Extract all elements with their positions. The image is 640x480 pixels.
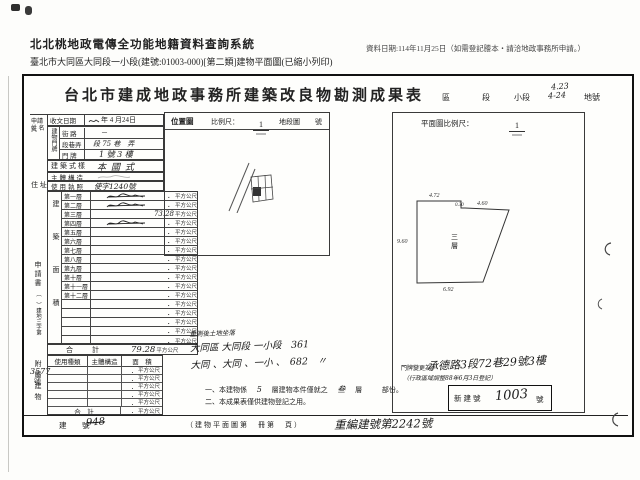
note1-part-f: 部份。	[382, 386, 403, 394]
lane-value: 段 75 巷 弄	[93, 139, 134, 149]
scale-numerator: 1	[253, 121, 269, 131]
receive-date-label: 收文日期	[48, 115, 85, 125]
floor-row: 第九層．平方公尺	[62, 264, 198, 273]
note1-hand-floors: 5	[257, 385, 262, 394]
floor-label: 第一層	[62, 192, 91, 200]
sheet-label: 地段圖	[279, 117, 300, 127]
floor-label	[62, 336, 91, 344]
building-address-block: 建物門牌 街 路 － 段巷弄 段 75 巷 弄 門 牌 1 號 3 樓	[47, 126, 164, 160]
door-number-label: 門 牌	[60, 150, 85, 160]
scale-fraction: 1	[253, 114, 269, 135]
street-value: －	[101, 128, 108, 138]
dim-bottom: 6.92	[443, 287, 454, 293]
handwriting-scribble	[88, 117, 100, 125]
form-title: 台北市建成地政事務所建築改良物勘測成果表	[64, 84, 424, 105]
street-label: 街 路	[60, 128, 85, 138]
annex-group-label: 附屬建物	[33, 360, 43, 404]
location-map-header: 位置圖 比例尺： 1 地段圖 號	[165, 113, 329, 130]
unit-label: 平方公尺	[175, 264, 197, 272]
unit-label: 平方公尺	[175, 273, 197, 281]
applicant-label-2: 姓 名	[31, 123, 45, 132]
cancelled-scribble	[105, 219, 161, 228]
floor-label: 第六層	[62, 237, 91, 245]
scan-mark-crescent	[608, 412, 621, 427]
unit-label: 平方公尺	[175, 309, 197, 317]
resurvey-line2: 大同 、大同 、一小 、 682 〃	[190, 353, 327, 372]
floor-total-label: 合 計	[66, 345, 105, 355]
address-label: 住 址	[31, 181, 47, 189]
floor-row: ．平方公尺	[62, 300, 198, 309]
unit-label: 平方公尺	[175, 255, 197, 263]
new-building-no-box: 新建號 1003 號	[448, 385, 552, 411]
document-line: 臺北市大同區大同段一小段(建號:01003-000)[第二類]建物平面圖(已縮小…	[30, 55, 332, 68]
building-address-group-label: 建物門牌	[49, 128, 58, 160]
floor-label	[62, 327, 91, 335]
cancelled-scribble	[105, 201, 161, 210]
new-building-no-suffix: 號	[536, 394, 544, 405]
receive-date-row: 收文日期 年 4 月24日	[47, 114, 164, 126]
floor-row: 第十二層．平方公尺	[62, 291, 198, 300]
renumber-text: 重編建號第2242號	[334, 415, 433, 433]
floor-label	[62, 318, 91, 326]
district-label: 區	[442, 92, 450, 103]
application-doc-top: 申請書	[33, 261, 43, 288]
floor-row: ．平方公尺	[62, 309, 198, 318]
structure-label: 主體構造	[48, 172, 91, 181]
date-info: 資料日期:114年11月25日（如需登記謄本‧請洽地政事務所申請。）	[366, 43, 628, 54]
location-map-box: 位置圖 比例尺： 1 地段圖 號	[164, 112, 330, 256]
annex-total-row: 合 計 ．平方公尺	[48, 406, 162, 415]
unit-label: 平方公尺	[175, 318, 197, 326]
floor-value: ．	[167, 336, 174, 345]
annex-header-use: 使用種類	[48, 356, 88, 366]
style-row: 建築式樣 本國式	[47, 160, 164, 172]
note1-part-e: 層	[355, 386, 362, 394]
application-doc-mid: （ ）建地三字第	[34, 291, 42, 335]
unit-label: 平方公尺	[138, 407, 160, 415]
floor-label: 第二層	[62, 201, 91, 209]
door-number-value: 1 號 3 樓	[99, 149, 133, 160]
bottom-strip: 建 號 948 （建物平面圖第 冊第 頁） 重編建號第2242號	[24, 415, 628, 432]
dim-left: 9.60	[397, 239, 408, 245]
note-1: 一、本建物係 5 層建物本件僅就之 叁 層 部份。	[205, 384, 403, 395]
location-map-title: 位置圖	[171, 116, 194, 127]
cancelled-scribble	[105, 192, 161, 201]
floor-label: 第十一層	[62, 282, 91, 290]
note1-part-c: 層建物本件僅就之	[272, 386, 328, 394]
annex-header-structure: 主體構造	[88, 356, 122, 366]
resurvey-note: 重測後土地坐落 大同區 大同段 一小段 361 大同 、大同 、一小 、 682…	[189, 324, 327, 372]
floor-row: ．平方公尺	[62, 318, 198, 327]
floor-plan-box: 平面圖比例尺： 1 4.72 0.30 4.60 9.60 6.92 三 層 門…	[392, 112, 585, 413]
floor-label: 第十二層	[62, 291, 91, 299]
unit-label: 平方公尺	[175, 300, 197, 308]
location-sketch	[223, 155, 281, 213]
floor-total-value: 79.28	[131, 345, 155, 355]
scan-speckle	[25, 6, 32, 15]
plan-book-label: （建物平面圖第 冊第 頁）	[186, 420, 303, 430]
lot-handwritten-lower: 4-24	[548, 91, 566, 101]
floor-label: 第八層	[62, 255, 91, 263]
style-label: 建築式樣	[48, 161, 91, 171]
room-label-char2: 層	[451, 242, 458, 250]
floor-row: ．平方公尺	[62, 327, 198, 336]
receive-date-value: 年 4 月24日	[101, 115, 136, 125]
section-label: 段	[482, 92, 490, 103]
style-value: 本國式	[97, 160, 139, 172]
floor-total-row: 合 計 79.28 平方公尺	[47, 344, 198, 355]
license-value: 使字1240號	[94, 181, 136, 191]
floor-label	[62, 300, 91, 308]
room-label-char1: 三	[451, 233, 458, 241]
new-building-no-label: 新建號	[454, 393, 483, 404]
page-edge-line	[8, 76, 9, 472]
floor-label: 第五層	[62, 228, 91, 236]
unit-label: 平方公尺	[175, 282, 197, 290]
scale-denominator-smudge	[256, 133, 266, 135]
floor-label: 第四層	[62, 219, 91, 227]
floor-label: 第十層	[62, 273, 91, 281]
scan-mark-crescent	[600, 241, 614, 257]
subsection-label: 小段	[514, 92, 530, 103]
license-label: 使用執照	[48, 181, 91, 191]
floor-row: ．平方公尺	[62, 336, 198, 344]
dim-top: 4.72	[429, 192, 440, 199]
annex-total-label: 合 計	[48, 406, 121, 415]
unit-label: 平方公尺	[138, 398, 160, 406]
sheet-number-label: 號	[315, 117, 322, 127]
scan-mark-crescent	[595, 298, 605, 310]
floor-label: 第九層	[62, 264, 91, 272]
lot-label: 地號	[584, 92, 600, 103]
scale-label: 比例尺：	[211, 117, 239, 127]
note1-part-a: 一、本建物係	[205, 386, 247, 394]
license-row: 使用執照 使字1240號	[47, 181, 164, 191]
scanned-survey-document-page: 北北桃地政電傳全功能地籍資料查詢系統 臺北市大同區大同段一小段(建號:01003…	[0, 0, 640, 480]
floor-label	[62, 309, 91, 317]
new-building-no-value: 1003	[495, 387, 529, 404]
structure-row: 主體構造	[47, 172, 164, 181]
unit-label: 平方公尺	[175, 291, 197, 299]
faint-scribble	[97, 174, 131, 180]
floor-label: 第三層	[62, 210, 91, 218]
annex-value: ．	[131, 406, 137, 415]
survey-form: 台北市建成地政事務所建築改良物勘測成果表 區 段 小段 4.23 4-24 地號…	[22, 74, 634, 437]
floor-label: 第七層	[62, 246, 91, 254]
resurvey-line1: 大同區 大同段 一小段 361	[190, 336, 327, 355]
dim-notch: 0.30	[455, 203, 464, 208]
address-change-note: （行政區域調整88年6月3日登記）	[403, 373, 496, 382]
floor-area-group-label: 建築面積	[51, 200, 61, 344]
floor-value: ．	[167, 326, 174, 336]
lane-label: 段巷弄	[60, 139, 85, 149]
note1-hand-floor: 叁	[337, 385, 345, 394]
unit-label: 平方公尺	[156, 346, 178, 354]
building-no-value: 948	[86, 416, 106, 428]
annex-header-area: 面 積	[122, 356, 162, 366]
door-number-row: 門 牌 1 號 3 樓	[59, 149, 164, 160]
annex-block: 使用種類 主體構造 面 積 ．平方公尺 ．平方公尺 ．平方公尺 ．平方公尺 ．平…	[47, 355, 163, 415]
scan-speckle	[11, 4, 20, 11]
system-title: 北北桃地政電傳全功能地籍資料查詢系統	[30, 36, 255, 52]
note-2: 二、本成果表僅供建物登記之用。	[205, 397, 310, 407]
dim-diag: 4.60	[477, 200, 488, 207]
floor-row: 第八層．平方公尺	[62, 255, 198, 264]
left-outer-column: 申請人 姓 名 住 址 申請書 （ ）建地三字第 3577 號 附屬建物	[30, 114, 48, 416]
